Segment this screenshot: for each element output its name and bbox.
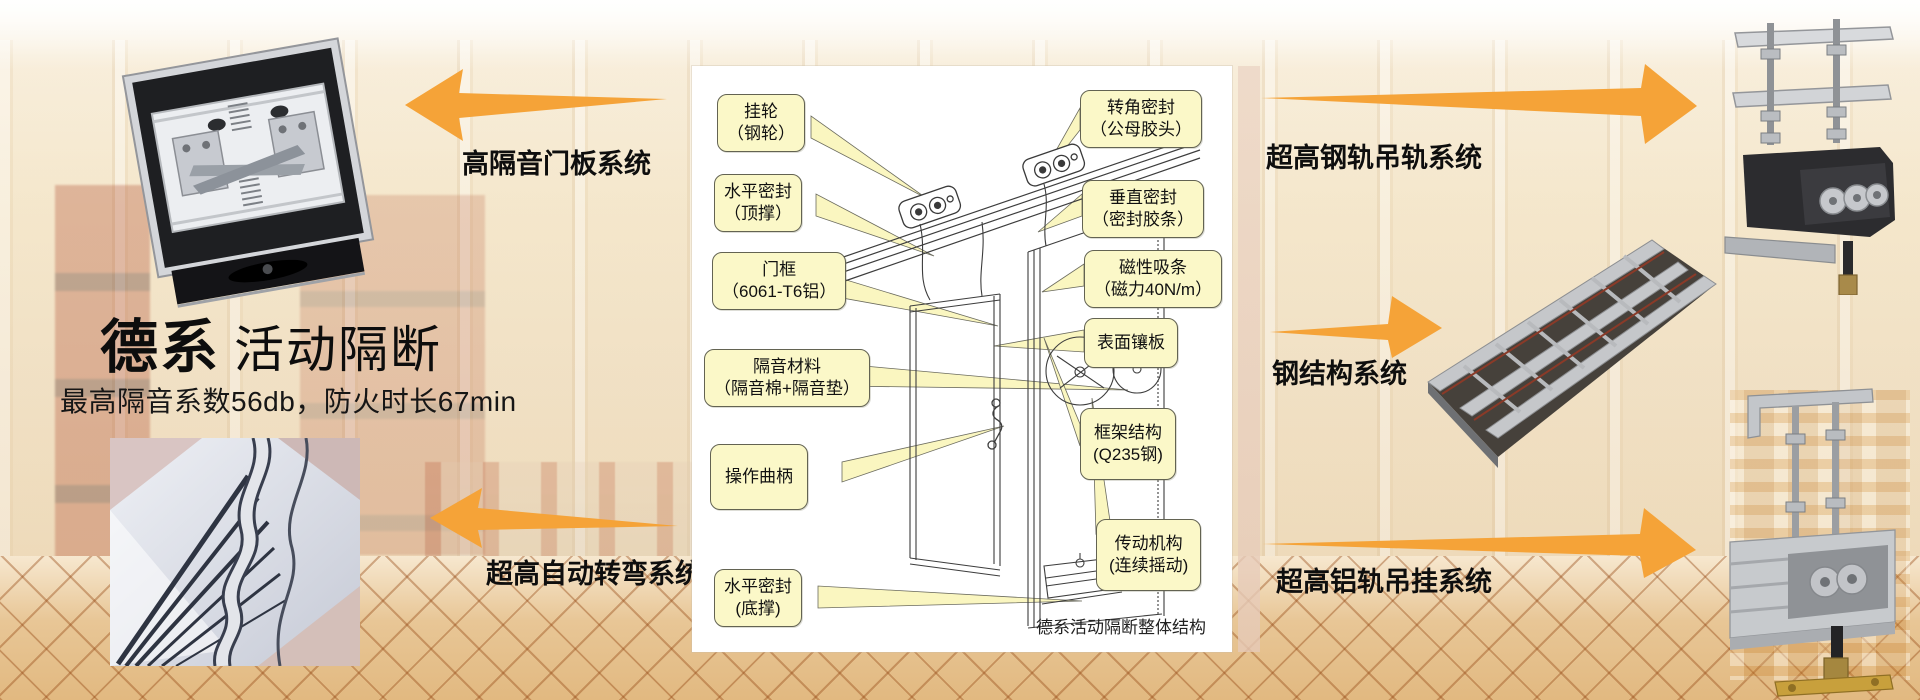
system-label-steel-rail: 超高钢轨吊轨系统 — [1266, 136, 1482, 175]
system-label-steel-structure: 钢结构系统 — [1272, 352, 1407, 391]
callout-sound-insulation: 隔音材料 （隔音棉+隔音垫） — [704, 349, 870, 407]
system-label-door-panel: 高隔音门板系统 — [462, 142, 651, 181]
callout-text: 表面镶板 — [1097, 332, 1165, 354]
diagram-panel: 挂轮 （钢轮） 水平密封 （顶撑） 门框 （6061-T6铝） 隔音材料 （隔音… — [692, 66, 1232, 652]
system-label-auto-turn: 超高自动转弯系统 — [486, 552, 702, 591]
arrow-left-icon — [430, 486, 678, 550]
diagram-caption: 德系活动隔断整体结构 — [1036, 613, 1206, 638]
background-ceiling — [0, 0, 1920, 70]
callout-text: (底撑) — [724, 598, 792, 620]
callout-text: (连续摇动) — [1109, 555, 1188, 577]
callout-text: 水平密封 — [724, 576, 792, 598]
callout-text: 门框 — [722, 259, 836, 281]
callout-magnetic-strip: 磁性吸条 （磁力40N/m） — [1084, 250, 1222, 308]
product-name: 活动隔断 — [234, 322, 442, 378]
callout-text: 隔音材料 — [714, 356, 860, 378]
callout-text: 传动机构 — [1109, 533, 1188, 555]
callout-crank: 操作曲柄 — [710, 444, 808, 510]
callout-text: 垂直密封 — [1092, 187, 1194, 209]
callout-top-seal: 水平密封 （顶撑） — [714, 174, 802, 232]
system-label-alu-rail: 超高铝轨吊挂系统 — [1276, 560, 1492, 599]
callout-text: 操作曲柄 — [725, 466, 793, 488]
page-title: 德系活动隔断 — [100, 300, 442, 384]
callout-drive-mechanism: 传动机构 (连续摇动) — [1096, 519, 1201, 591]
callout-text: (Q235钢) — [1093, 444, 1163, 466]
callout-text: 框架结构 — [1093, 422, 1163, 444]
callout-text: （6061-T6铝） — [722, 281, 836, 303]
callout-vertical-seal: 垂直密封 （密封胶条） — [1082, 180, 1204, 238]
callout-text: （磁力40N/m） — [1094, 279, 1212, 301]
callout-surface-panel: 表面镶板 — [1084, 318, 1178, 368]
callout-bottom-seal: 水平密封 (底撑) — [714, 569, 802, 627]
callout-text: （顶撑） — [724, 203, 792, 225]
callout-text: （密封胶条） — [1092, 209, 1194, 231]
callout-text: 磁性吸条 — [1094, 257, 1212, 279]
arrow-left-icon — [405, 66, 667, 144]
brand-name: 德系 — [100, 315, 220, 380]
callout-text: （公母胶头） — [1090, 119, 1192, 141]
callout-text: 水平密封 — [724, 181, 792, 203]
background-wall-strip — [1238, 66, 1260, 652]
callout-hanging-wheel: 挂轮 （钢轮） — [717, 94, 805, 152]
callout-corner-seal: 转角密封 （公母胶头） — [1080, 90, 1202, 148]
background-wall-lights — [1730, 390, 1910, 680]
callout-text: 挂轮 — [727, 101, 795, 123]
callout-text: 转角密封 — [1090, 97, 1192, 119]
arrow-right-icon — [1261, 62, 1697, 146]
callout-text: （隔音棉+隔音垫） — [714, 378, 860, 400]
page: 德系活动隔断 最高隔音系数56db，防火时长67min — [0, 0, 1920, 700]
callout-text: （钢轮） — [727, 123, 795, 145]
callout-frame-structure: 框架结构 (Q235钢) — [1080, 408, 1176, 480]
product-subtitle: 最高隔音系数56db，防火时长67min — [60, 380, 517, 420]
callout-door-frame: 门框 （6061-T6铝） — [712, 252, 846, 310]
